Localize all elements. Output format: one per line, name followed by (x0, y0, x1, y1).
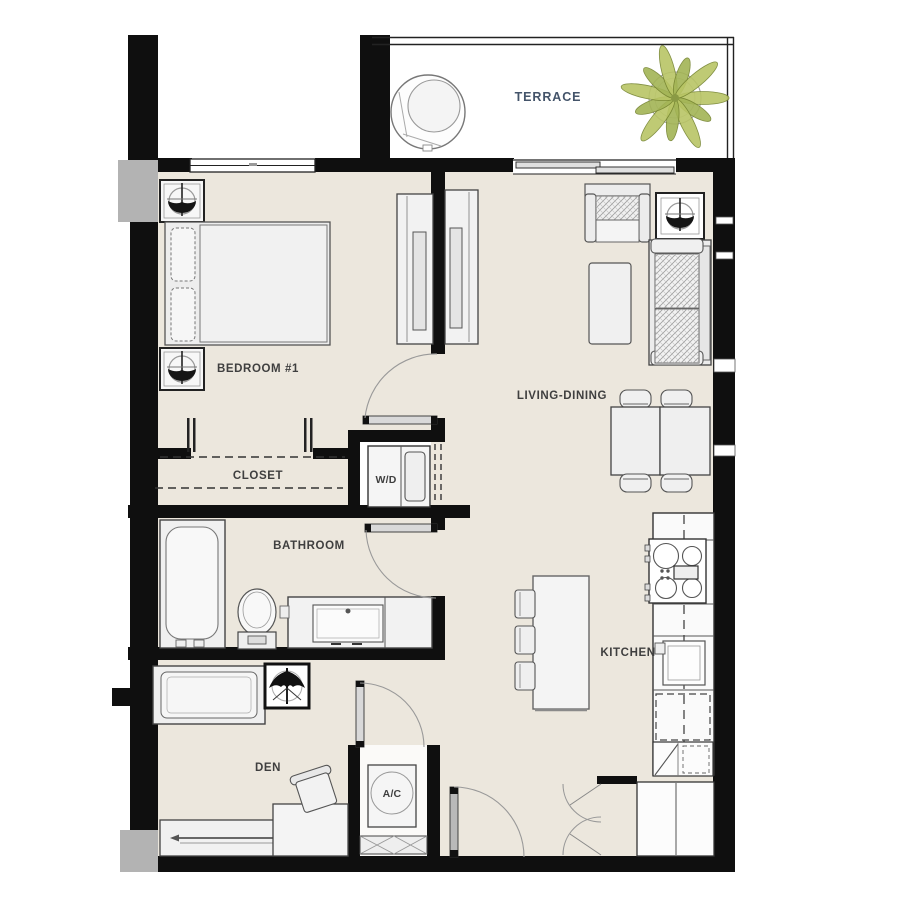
room-label-bedroom: BEDROOM #1 (217, 363, 299, 375)
toilet (238, 589, 276, 649)
armchair (585, 184, 650, 242)
vanity-sink (280, 597, 432, 648)
terrace-sliding-door (513, 159, 676, 174)
ac-louver-vent (360, 836, 427, 854)
wardrobe (397, 194, 433, 344)
ceiling-fan-icon (265, 664, 309, 708)
terrace: TERRACE (372, 37, 734, 158)
nightstand-lamp-top (160, 180, 204, 222)
bedroom-window (190, 159, 315, 172)
hall-cabinet (445, 190, 478, 344)
stool (515, 662, 535, 690)
floor-plan: TERRACE (0, 0, 900, 900)
nightstand-lamp-bottom (160, 348, 204, 390)
floor-plan-canvas: TERRACE (0, 0, 900, 900)
kitchen-island (515, 576, 589, 710)
coffee-table (589, 263, 631, 344)
kitchen-sink (655, 641, 705, 685)
bed (165, 222, 330, 345)
stool (515, 626, 535, 654)
room-label-kitchen: KITCHEN (600, 647, 655, 659)
room-label-terrace: TERRACE (515, 90, 582, 104)
room-label-bathroom: BATHROOM (273, 540, 345, 552)
sofa (649, 239, 711, 365)
bathtub (160, 520, 225, 648)
laundry-closet: W/D (360, 442, 441, 507)
side-table-lamp (656, 193, 704, 239)
pillow (171, 288, 195, 341)
room-label-ac: A/C (383, 788, 402, 800)
daybed-sofa (153, 666, 265, 724)
stool (515, 590, 535, 618)
lounge-chair (391, 75, 465, 151)
plant (620, 44, 729, 150)
room-label-den: DEN (255, 762, 281, 774)
pillow (171, 228, 195, 281)
stove (645, 539, 706, 603)
room-label-living-dining: LIVING-DINING (517, 390, 607, 402)
room-label-closet: CLOSET (233, 470, 283, 482)
room-label-washer-dryer: W/D (375, 474, 396, 486)
refrigerator (653, 742, 713, 776)
